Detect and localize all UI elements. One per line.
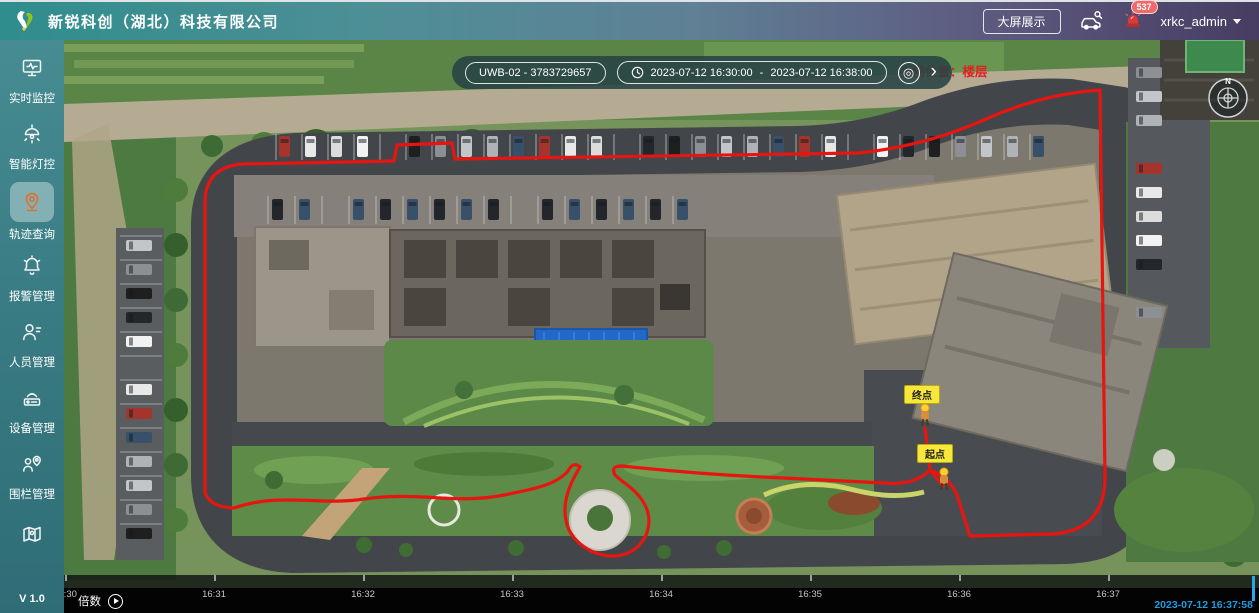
sidebar-item-label: 围栏管理	[9, 486, 55, 502]
timeline-tick	[1108, 575, 1110, 581]
alarm-count-badge: 537	[1131, 0, 1158, 14]
timeline-tick-label: 16:35	[798, 589, 822, 600]
device-icon	[11, 380, 53, 416]
app-version-label: V 1.0	[19, 593, 45, 605]
collapse-arrow-icon[interactable]: ›	[931, 62, 939, 84]
playhead-timestamp: 2023-07-12 16:37:58	[1154, 599, 1253, 611]
sidebar-item-smart-light[interactable]: 智能灯控	[0, 116, 64, 182]
sidebar-item-map[interactable]	[0, 516, 64, 566]
big-screen-button[interactable]: 大屏展示	[983, 9, 1061, 34]
aerial-map	[64, 40, 1259, 613]
vehicle-search-icon[interactable]	[1078, 9, 1105, 33]
timeline-tick-label: 16:34	[649, 589, 673, 600]
compass-control[interactable]: N	[1206, 76, 1250, 120]
fence-icon	[11, 446, 53, 482]
timeline-tick	[810, 575, 812, 581]
time-range-picker[interactable]: 2023-07-12 16:30:00 - 2023-07-12 16:38:0…	[617, 61, 887, 84]
trajectory-query-bar: UWB-02 - 3783729657 2023-07-12 16:30:00 …	[452, 56, 952, 89]
end-point-marker[interactable]: 终点	[904, 385, 940, 404]
trajectory-pin-icon	[10, 182, 54, 222]
time-end: 2023-07-12 16:38:00	[770, 67, 872, 79]
map-icon	[11, 516, 53, 552]
sidebar-item-alarm-management[interactable]: 报警管理	[0, 248, 64, 314]
sidebar-item-label: 报警管理	[9, 288, 55, 304]
timeline-tick-label: 16:30	[64, 589, 77, 600]
device-select[interactable]: UWB-02 - 3783729657	[465, 62, 606, 84]
chevron-down-icon	[1233, 19, 1241, 24]
compass-north-label: N	[1225, 77, 1231, 86]
playback-timeline[interactable]: 16:3016:3116:3216:3316:3416:3516:3616:37…	[64, 575, 1259, 613]
timeline-tick	[363, 575, 365, 581]
start-point-marker[interactable]: 起点	[917, 444, 953, 463]
person-icon	[11, 314, 53, 350]
sidebar-item-device-management[interactable]: 设备管理	[0, 380, 64, 446]
timeline-tick	[214, 575, 216, 581]
timeline-tick-label: 16:37	[1096, 589, 1120, 600]
timeline-tick-label: 16:33	[500, 589, 524, 600]
sidebar-item-label: 轨迹查询	[9, 226, 55, 242]
timeline-label-row: 16:3016:3116:3216:3316:3416:3516:3616:37	[64, 588, 1259, 613]
alarm-notifications-icon[interactable]: 537	[1122, 10, 1144, 32]
device-value: UWB-02 - 3783729657	[479, 67, 592, 79]
search-track-button[interactable]: ◎	[898, 62, 920, 84]
user-menu[interactable]: xrkc_admin	[1161, 14, 1241, 29]
timeline-tick	[512, 575, 514, 581]
timeline-tick	[959, 575, 961, 581]
timeline-track[interactable]	[64, 575, 1259, 588]
sidebar-item-label: 设备管理	[9, 420, 55, 436]
timeline-tick-label: 16:36	[947, 589, 971, 600]
app-header: 新锐科创（湖北）科技有限公司 大屏展示 537 xrkc_admin	[0, 0, 1259, 40]
speed-control[interactable]: 倍数	[78, 593, 123, 609]
sidebar-nav: 实时监控 智能灯控 轨迹查询 报警管理	[0, 40, 64, 613]
timeline-tick-label: 16:32	[351, 589, 375, 600]
playhead-cursor[interactable]	[1252, 576, 1255, 601]
monitor-icon	[11, 50, 53, 86]
time-start: 2023-07-12 16:30:00	[651, 67, 753, 79]
lamp-icon	[11, 116, 53, 152]
play-icon	[114, 598, 119, 604]
sidebar-item-personnel-management[interactable]: 人员管理	[0, 314, 64, 380]
timeline-tick	[661, 575, 663, 581]
time-separator: -	[760, 67, 764, 79]
speed-label: 倍数	[78, 593, 101, 609]
sidebar-item-fence-management[interactable]: 围栏管理	[0, 446, 64, 512]
timeline-tick-label: 16:31	[202, 589, 226, 600]
alarm-bell-icon	[11, 248, 53, 284]
sidebar-item-label: 智能灯控	[9, 156, 55, 172]
company-logo-icon	[12, 7, 40, 35]
sidebar-item-realtime-monitor[interactable]: 实时监控	[0, 50, 64, 116]
timeline-tick	[65, 575, 67, 581]
sidebar-item-label: 实时监控	[9, 90, 55, 106]
username-label: xrkc_admin	[1161, 14, 1227, 29]
play-button[interactable]	[108, 594, 123, 609]
page-title: 新锐科创（湖北）科技有限公司	[48, 11, 279, 32]
map-canvas[interactable]: UWB-02 - 3783729657 2023-07-12 16:30:00 …	[64, 40, 1259, 613]
locate-icon: ◎	[903, 65, 914, 81]
clock-icon	[631, 66, 644, 79]
sidebar-item-label: 人员管理	[9, 354, 55, 370]
sidebar-item-trajectory-query[interactable]: 轨迹查询	[0, 182, 64, 248]
